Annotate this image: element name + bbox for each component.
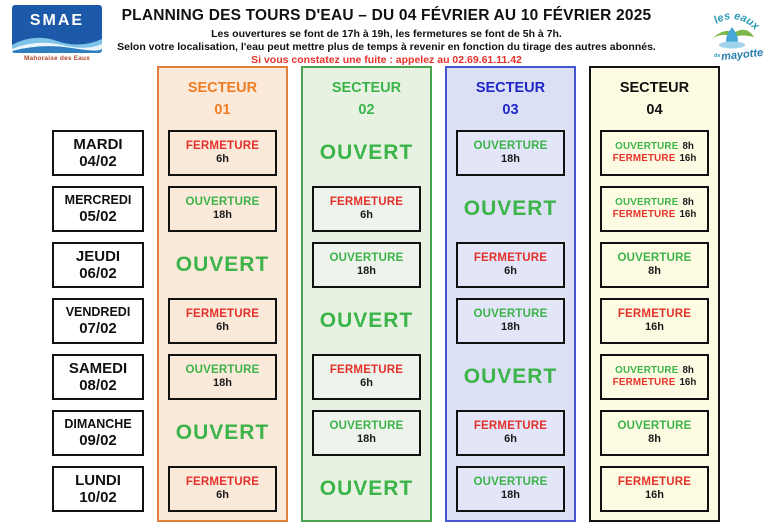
day-date: 10/02 — [79, 489, 117, 506]
day-box: LUNDI10/02 — [52, 466, 144, 512]
sector-title-label: SECTEUR — [159, 77, 286, 99]
smae-logo: SMAE Mahoraise des Eaux — [10, 5, 104, 62]
status-word: FERMETURE — [186, 140, 259, 154]
day-name: DIMANCHE — [64, 417, 131, 431]
status-time: 18h — [357, 265, 376, 278]
sector-column-02: SECTEUR02OUVERTFERMETURE6hOUVERTURE18hOU… — [301, 66, 432, 522]
sector-cells: OUVERTURE18hOUVERTFERMETURE6hOUVERTURE18… — [447, 130, 574, 520]
sector-column-03: SECTEUR03OUVERTURE18hOUVERTFERMETURE6hOU… — [445, 66, 576, 522]
status-word: FERMETURE — [330, 196, 403, 210]
smae-logo-square: SMAE — [12, 5, 102, 53]
schedule-cell: FERMETURE6h — [168, 466, 277, 512]
svg-text:mayotte: mayotte — [721, 47, 764, 63]
schedule-cell: OUVERT — [456, 354, 565, 400]
sector-title: SECTEUR04 — [591, 68, 718, 130]
status-word: OUVERTURE — [473, 476, 547, 490]
status-word: FERMETURE — [613, 209, 676, 221]
status-word: OUVERTURE — [185, 364, 259, 378]
water-drop-icon: les eaux de mayotte — [700, 1, 764, 65]
sector-cells: OUVERTFERMETURE6hOUVERTURE18hOUVERTFERME… — [303, 130, 430, 520]
open-status: OUVERT — [464, 196, 558, 221]
schedule-cell: FERMETURE16h — [600, 466, 709, 512]
status-word: OUVERTURE — [617, 252, 691, 266]
schedule-cell: FERMETURE6h — [312, 354, 421, 400]
status-time: 6h — [216, 153, 229, 166]
schedule-cell: FERMETURE6h — [168, 298, 277, 344]
sector-title-number: 03 — [447, 99, 574, 121]
open-status: OUVERT — [176, 252, 270, 277]
schedule-cell: OUVERTURE18h — [456, 130, 565, 176]
day-name: LUNDI — [75, 472, 121, 489]
schedule-board: MARDI04/02MERCREDI05/02JEUDI06/02VENDRED… — [0, 66, 768, 522]
schedule-cell: OUVERTURE8hFERMETURE16h — [600, 354, 709, 400]
status-word: FERMETURE — [330, 364, 403, 378]
status-line: OUVERTURE8h — [615, 365, 694, 377]
schedule-cell: FERMETURE16h — [600, 298, 709, 344]
open-status: OUVERT — [464, 364, 558, 389]
open-status: OUVERT — [320, 476, 414, 501]
leak-alert-text: Si vous constatez une fuite : appelez au… — [115, 54, 658, 66]
schedule-cell: OUVERTURE8h — [600, 242, 709, 288]
svg-text:de: de — [714, 53, 720, 59]
status-time: 6h — [504, 433, 517, 446]
status-time: 18h — [213, 377, 232, 390]
status-time: 8h — [682, 365, 693, 377]
day-date: 06/02 — [79, 265, 117, 282]
status-word: FERMETURE — [474, 252, 547, 266]
sector-title-number: 02 — [303, 99, 430, 121]
status-time: 18h — [501, 489, 520, 502]
status-time: 8h — [682, 141, 693, 153]
sector-title-label: SECTEUR — [303, 77, 430, 99]
sector-cells: FERMETURE6hOUVERTURE18hOUVERTFERMETURE6h… — [159, 130, 286, 520]
smae-logo-caption: Mahoraise des Eaux — [10, 55, 104, 62]
poster-title: PLANNING DES TOURS D'EAU – DU 04 FÉVRIER… — [115, 7, 658, 25]
schedule-cell: OUVERTURE18h — [312, 242, 421, 288]
status-word: FERMETURE — [186, 476, 259, 490]
schedule-cell: FERMETURE6h — [168, 130, 277, 176]
svg-text:les eaux: les eaux — [712, 10, 762, 33]
status-time: 16h — [679, 153, 696, 165]
day-box: MERCREDI05/02 — [52, 186, 144, 232]
status-time: 8h — [648, 433, 661, 446]
day-box: JEUDI06/02 — [52, 242, 144, 288]
status-time: 6h — [360, 377, 373, 390]
sector-title-number: 01 — [159, 99, 286, 121]
status-line: OUVERTURE8h — [615, 197, 694, 209]
day-box: SAMEDI08/02 — [52, 354, 144, 400]
day-name: SAMEDI — [69, 360, 127, 377]
status-word: FERMETURE — [613, 153, 676, 165]
status-word: FERMETURE — [618, 308, 691, 322]
open-status: OUVERT — [176, 420, 270, 445]
status-time: 16h — [679, 209, 696, 221]
status-time: 6h — [216, 321, 229, 334]
schedule-cell: OUVERT — [312, 298, 421, 344]
sector-cells: OUVERTURE8hFERMETURE16hOUVERTURE8hFERMET… — [591, 130, 718, 520]
schedule-cell: OUVERTURE18h — [456, 466, 565, 512]
schedule-cell: OUVERT — [168, 410, 277, 456]
planning-poster: SMAE Mahoraise des Eaux PLANNING DES TOU… — [0, 0, 768, 528]
day-box: MARDI04/02 — [52, 130, 144, 176]
sector-column-01: SECTEUR01FERMETURE6hOUVERTURE18hOUVERTFE… — [157, 66, 288, 522]
open-status: OUVERT — [320, 140, 414, 165]
schedule-cell: OUVERT — [168, 242, 277, 288]
sector-title: SECTEUR03 — [447, 68, 574, 130]
subtitle-notice: Selon votre localisation, l'eau peut met… — [115, 41, 658, 53]
day-date: 08/02 — [79, 377, 117, 394]
header-text-block: PLANNING DES TOURS D'EAU – DU 04 FÉVRIER… — [0, 0, 768, 66]
status-time: 16h — [645, 489, 664, 502]
day-name: MARDI — [73, 136, 122, 153]
status-word: FERMETURE — [474, 420, 547, 434]
status-time: 8h — [648, 265, 661, 278]
schedule-cell: FERMETURE6h — [456, 410, 565, 456]
status-word: FERMETURE — [618, 476, 691, 490]
status-time: 16h — [645, 321, 664, 334]
status-word: OUVERTURE — [185, 196, 259, 210]
day-date: 09/02 — [79, 432, 117, 449]
status-word: OUVERTURE — [615, 365, 678, 377]
wave-icon — [12, 31, 102, 53]
schedule-cell: OUVERTURE8hFERMETURE16h — [600, 130, 709, 176]
status-word: OUVERTURE — [329, 252, 403, 266]
schedule-cell: OUVERT — [456, 186, 565, 232]
schedule-cell: OUVERTURE18h — [168, 354, 277, 400]
day-box: DIMANCHE09/02 — [52, 410, 144, 456]
open-status: OUVERT — [320, 308, 414, 333]
status-time: 6h — [504, 265, 517, 278]
poster-header: SMAE Mahoraise des Eaux PLANNING DES TOU… — [0, 0, 768, 66]
status-word: FERMETURE — [613, 377, 676, 389]
status-time: 18h — [213, 209, 232, 222]
status-line: FERMETURE16h — [613, 377, 697, 389]
status-time: 16h — [679, 377, 696, 389]
status-word: OUVERTURE — [473, 308, 547, 322]
sector-title-label: SECTEUR — [591, 77, 718, 99]
day-date: 04/02 — [79, 153, 117, 170]
schedule-cell: OUVERT — [312, 130, 421, 176]
status-word: OUVERTURE — [329, 420, 403, 434]
schedule-cell: OUVERTURE8hFERMETURE16h — [600, 186, 709, 232]
status-word: OUVERTURE — [617, 420, 691, 434]
status-time: 6h — [360, 209, 373, 222]
status-time: 18h — [501, 321, 520, 334]
status-line: OUVERTURE8h — [615, 141, 694, 153]
schedule-cell: OUVERTURE8h — [600, 410, 709, 456]
status-time: 18h — [501, 153, 520, 166]
status-time: 18h — [357, 433, 376, 446]
day-name: MERCREDI — [65, 193, 132, 207]
day-date: 07/02 — [79, 320, 117, 337]
status-word: OUVERTURE — [473, 140, 547, 154]
schedule-cell: OUVERTURE18h — [456, 298, 565, 344]
day-labels-column: MARDI04/02MERCREDI05/02JEUDI06/02VENDRED… — [52, 130, 144, 522]
subtitle-hours: Les ouvertures se font de 17h à 19h, les… — [115, 28, 658, 40]
smae-logo-text: SMAE — [30, 12, 84, 30]
sector-title-label: SECTEUR — [447, 77, 574, 99]
schedule-cell: FERMETURE6h — [456, 242, 565, 288]
les-eaux-de-mayotte-logo: les eaux de mayotte — [700, 1, 764, 65]
schedule-cell: OUVERTURE18h — [168, 186, 277, 232]
sector-title-number: 04 — [591, 99, 718, 121]
day-name: VENDREDI — [66, 305, 131, 319]
schedule-cell: OUVERT — [312, 466, 421, 512]
status-time: 8h — [682, 197, 693, 209]
status-time: 6h — [216, 489, 229, 502]
schedule-cell: FERMETURE6h — [312, 186, 421, 232]
sector-title: SECTEUR02 — [303, 68, 430, 130]
status-word: OUVERTURE — [615, 141, 678, 153]
day-date: 05/02 — [79, 208, 117, 225]
day-name: JEUDI — [76, 248, 120, 265]
status-word: OUVERTURE — [615, 197, 678, 209]
status-word: FERMETURE — [186, 308, 259, 322]
status-line: FERMETURE16h — [613, 153, 697, 165]
schedule-cell: OUVERTURE18h — [312, 410, 421, 456]
sector-column-04: SECTEUR04OUVERTURE8hFERMETURE16hOUVERTUR… — [589, 66, 720, 522]
sector-title: SECTEUR01 — [159, 68, 286, 130]
day-box: VENDREDI07/02 — [52, 298, 144, 344]
status-line: FERMETURE16h — [613, 209, 697, 221]
